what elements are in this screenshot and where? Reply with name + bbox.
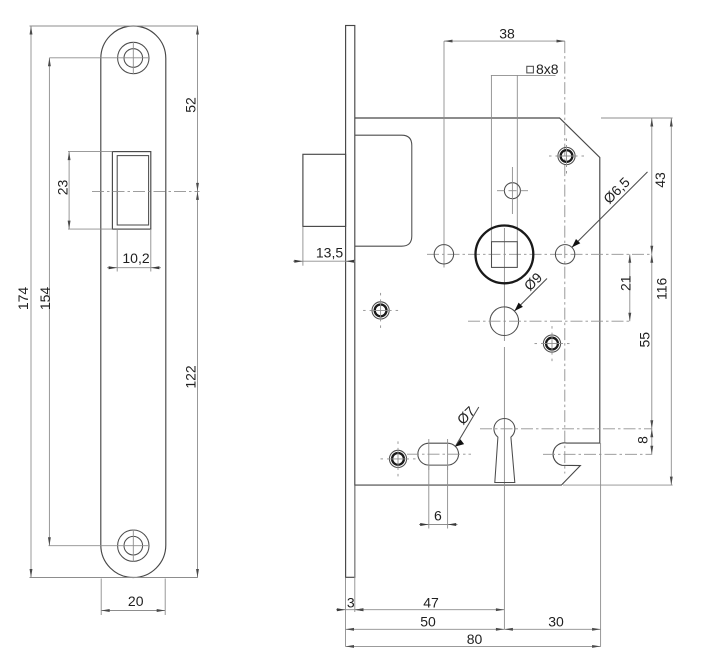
svg-text:50: 50: [420, 613, 436, 629]
svg-text:Ø9: Ø9: [521, 269, 546, 294]
svg-text:8: 8: [635, 436, 651, 444]
svg-text:80: 80: [467, 631, 483, 647]
svg-text:174: 174: [15, 287, 31, 311]
svg-text:43: 43: [652, 172, 668, 188]
svg-text:21: 21: [617, 275, 633, 291]
svg-text:10,2: 10,2: [122, 250, 149, 266]
svg-text:8x8: 8x8: [536, 61, 559, 77]
svg-text:122: 122: [182, 365, 198, 389]
svg-text:30: 30: [548, 613, 564, 629]
svg-text:23: 23: [54, 180, 70, 196]
svg-text:6: 6: [434, 508, 442, 524]
svg-text:Ø6,5: Ø6,5: [600, 174, 633, 207]
svg-text:52: 52: [182, 97, 198, 113]
svg-text:154: 154: [37, 287, 53, 311]
svg-text:20: 20: [128, 593, 144, 609]
svg-text:47: 47: [423, 594, 439, 610]
svg-text:13,5: 13,5: [316, 244, 343, 260]
svg-text:3: 3: [347, 594, 355, 610]
svg-text:116: 116: [654, 278, 670, 301]
svg-text:38: 38: [499, 26, 515, 42]
svg-text:55: 55: [637, 332, 653, 348]
svg-text:Ø7: Ø7: [454, 403, 479, 428]
